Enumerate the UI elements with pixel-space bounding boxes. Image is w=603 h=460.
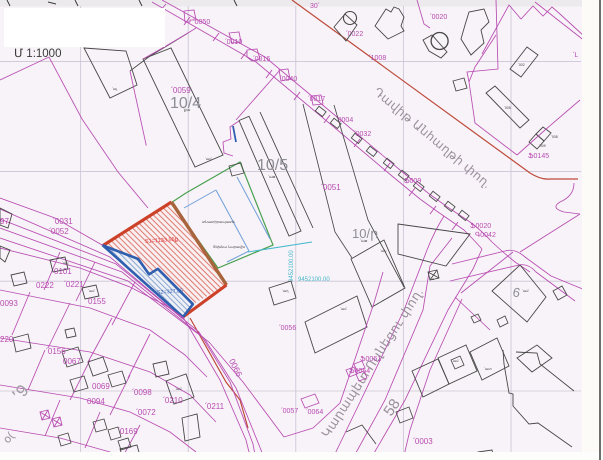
svg-text:՛ակ: ՛ակ — [380, 248, 387, 253]
svg-text:՛աօ: ՛աօ — [268, 174, 276, 179]
svg-text:՛0210: ՛0210 — [163, 396, 183, 405]
svg-text:՛աղ: ՛աղ — [282, 288, 289, 293]
svg-text:0222: 0222 — [36, 281, 54, 290]
svg-text:՛009: ՛009 — [539, 143, 546, 148]
svg-text:՛ամ: ՛ամ — [522, 288, 529, 293]
svg-text:Ֆ0145: Ֆ0145 — [528, 152, 549, 160]
svg-text:10/5: 10/5 — [257, 157, 288, 174]
svg-text:0101: 0101 — [54, 267, 72, 276]
svg-text:տնատիրապատե: տնատիրապատե — [202, 219, 236, 224]
svg-text:Ֆ0061: Ֆ0061 — [360, 355, 381, 363]
svg-text:Տեխնա Նարավխ: Տեխնա Նարավխ — [213, 244, 246, 249]
svg-text:Ֆ0020: Ֆ0020 — [470, 222, 491, 230]
svg-text:՛0211: ՛0211 — [205, 402, 225, 411]
svg-text:՛0040: ՛0040 — [280, 75, 297, 83]
svg-text:՛005: ՛005 — [504, 105, 511, 110]
svg-text:՛ամ: ՛ամ — [205, 156, 212, 161]
svg-text:՛1008: ՛1008 — [369, 54, 386, 62]
svg-text:՛0050: ՛0050 — [193, 18, 210, 26]
svg-text:՛0031: ՛0031 — [53, 217, 73, 226]
svg-text:՛0051: ՛0051 — [321, 183, 341, 192]
svg-text:՛Լ: ՛Լ — [573, 51, 579, 59]
svg-text:՛002: ՛002 — [518, 62, 525, 67]
svg-text:՛0064: ՛0064 — [306, 408, 323, 416]
svg-text:՛ատ: ՛ատ — [484, 366, 492, 371]
svg-text:՛0072: ՛0072 — [136, 408, 156, 417]
svg-text:Գ0042: Գ0042 — [475, 231, 496, 239]
svg-text:՛008: ՛008 — [551, 134, 558, 139]
svg-text:՛աօ: ՛աօ — [360, 238, 368, 243]
svg-text:՛0052: ՛0052 — [49, 227, 69, 236]
svg-text:9452100.00: 9452100.00 — [298, 277, 330, 283]
svg-text:՛ակ: ՛ակ — [62, 260, 69, 265]
svg-text:Մ 1:1000: Մ 1:1000 — [14, 48, 61, 60]
svg-text:9452100.00: 9452100.00 — [289, 250, 295, 282]
svg-text:՛քա: ՛քա — [183, 107, 190, 112]
svg-text:՛0016: ՛0016 — [253, 55, 270, 63]
svg-text:0069: 0069 — [92, 382, 110, 391]
svg-text:՛ա: ՛ա — [430, 276, 435, 281]
svg-text:՛0032: ՛0032 — [354, 130, 371, 138]
svg-text:՛0057: ՛0057 — [281, 407, 298, 415]
svg-text:0094: 0094 — [87, 397, 105, 406]
svg-text:՛0017: ՛0017 — [308, 95, 325, 103]
svg-text:220: 220 — [0, 335, 14, 344]
svg-text:97: 97 — [0, 217, 9, 226]
svg-text:30՛: 30՛ — [310, 2, 320, 10]
svg-text:՛0020: ՛0020 — [430, 13, 447, 21]
svg-text:՛0003: ՛0003 — [413, 437, 433, 446]
svg-text:՛0169: ՛0169 — [118, 427, 138, 436]
svg-text:՛0221: ՛0221 — [64, 280, 84, 289]
svg-text:՛0056: ՛0056 — [279, 324, 296, 332]
svg-text:՛ամ: ՛ամ — [175, 386, 182, 391]
svg-text:Ֆ0054: Ֆ0054 — [349, 367, 370, 375]
svg-text:՛ամ: ՛ամ — [452, 358, 459, 363]
svg-text:0093: 0093 — [0, 299, 18, 308]
svg-text:0067: 0067 — [63, 357, 81, 366]
svg-text:0155: 0155 — [88, 297, 106, 306]
svg-text:՛0010: ՛0010 — [225, 38, 242, 46]
svg-text:՛0098: ՛0098 — [132, 388, 152, 397]
svg-text:՛0156: ՛0156 — [46, 347, 66, 356]
svg-text:՛ամ: ՛ամ — [340, 306, 347, 311]
svg-text:՛0059: ՛0059 — [171, 86, 191, 95]
svg-text:Ֆ009: Ֆ009 — [404, 177, 421, 185]
svg-text:՛ամ: ՛ամ — [88, 288, 95, 293]
